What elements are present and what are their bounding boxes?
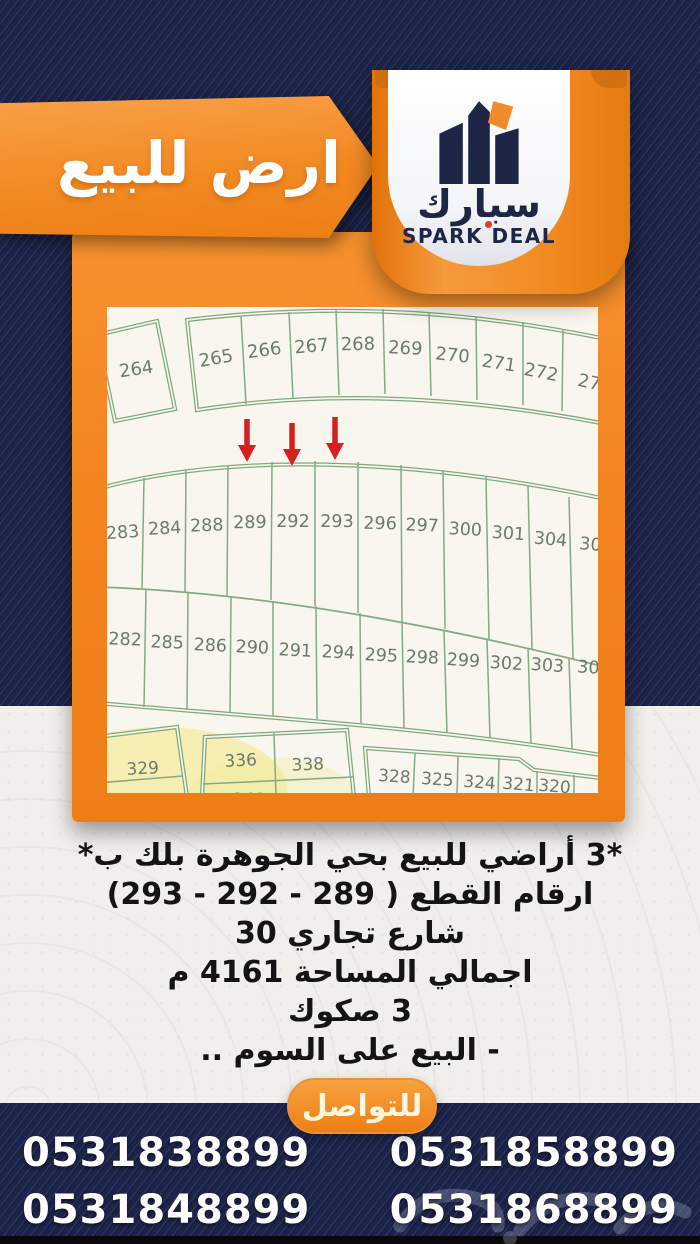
- building-icon: [424, 94, 534, 184]
- detail-line-area: اجمالي المساحة 4161 م: [0, 953, 700, 992]
- phone-number[interactable]: 0531838899: [22, 1130, 310, 1176]
- plot-number-284: 284: [148, 518, 182, 540]
- title-banner: ارض للبيع: [0, 96, 378, 238]
- plot-number-partial-339: 339: [297, 792, 329, 793]
- ad-details: *3 أراضي للبيع بحي الجوهرة بلك ب* ارقام …: [0, 836, 700, 1070]
- ad-poster: 264 3 265 266 267 268 269 270 271 272 27…: [0, 0, 700, 1244]
- plot-number-295: 295: [364, 645, 398, 667]
- detail-line-street: شارع تجاري 30: [0, 914, 700, 953]
- plot-number-303: 303: [530, 655, 565, 677]
- phone-row: 0531848899 0531868899: [22, 1181, 678, 1238]
- plot-number-328: 328: [377, 766, 411, 788]
- plot-number-269: 269: [388, 337, 423, 360]
- detail-line-deeds: 3 صكوك: [0, 992, 700, 1031]
- plot-map-svg: 264 3 265 266 267 268 269 270 271 272 27…: [107, 307, 598, 793]
- detail-line-sale-terms: - البيع على السوم ..: [0, 1031, 700, 1070]
- plot-number-338: 338: [291, 754, 324, 775]
- plot-number-299: 299: [446, 650, 481, 672]
- plot-number-324: 324: [462, 772, 496, 793]
- plot-number-321: 321: [501, 774, 535, 793]
- plot-number-partial-340: 340: [233, 790, 265, 793]
- detail-line-title: *3 أراضي للبيع بحي الجوهرة بلك ب*: [0, 836, 700, 875]
- detail-line-plot-numbers: ارقام القطع ( 289 - 292 - 293): [0, 875, 700, 914]
- plot-number-282: 282: [108, 629, 142, 650]
- plot-number-336: 336: [224, 750, 257, 772]
- contact-button[interactable]: للتواصل: [287, 1078, 437, 1134]
- map-panel: 264 3 265 266 267 268 269 270 271 272 27…: [72, 232, 625, 822]
- plot-number-partial-305: 30: [578, 534, 598, 556]
- plot-number-325: 325: [420, 769, 454, 791]
- plot-number-283: 283: [107, 522, 140, 544]
- plot-number-289: 289: [233, 513, 267, 534]
- plot-number-partial-306: 30: [577, 657, 598, 679]
- plot-number-270: 270: [434, 343, 470, 367]
- plot-number-296: 296: [363, 514, 397, 535]
- phone-number[interactable]: 0531848899: [22, 1187, 310, 1233]
- plot-number-329: 329: [126, 758, 159, 780]
- plot-number-286: 286: [193, 635, 227, 657]
- plot-number-301: 301: [491, 523, 526, 545]
- plot-number-320: 320: [537, 776, 571, 793]
- plot-number-297: 297: [405, 515, 439, 536]
- plot-number-292: 292: [276, 512, 309, 532]
- brand-name-english: SPARK DEAL: [402, 224, 556, 248]
- plot-number-298: 298: [405, 647, 439, 669]
- plot-number-304: 304: [533, 529, 568, 552]
- plot-number-266: 266: [246, 338, 283, 363]
- plot-map: 264 3 265 266 267 268 269 270 271 272 27…: [107, 307, 598, 793]
- plot-number-288: 288: [190, 515, 224, 536]
- plot-number-293: 293: [320, 512, 353, 532]
- plot-number-302: 302: [489, 653, 524, 675]
- phone-numbers: 0531838899 0531858899 0531848899 0531868…: [0, 1124, 700, 1238]
- title-banner-ribbon: ارض للبيع: [0, 96, 378, 238]
- phone-number[interactable]: 0531858899: [390, 1130, 678, 1176]
- brand-badge: سبارك SPARK DEAL: [388, 70, 570, 266]
- plot-number-285: 285: [150, 632, 184, 653]
- plot-number-267: 267: [293, 335, 329, 359]
- brand-name-arabic: سبارك: [417, 184, 541, 224]
- phone-number[interactable]: 0531868899: [390, 1187, 678, 1233]
- plot-number-294: 294: [321, 642, 355, 664]
- plot-number-291: 291: [278, 640, 312, 662]
- brand-red-dot: [485, 221, 492, 228]
- page-title: ارض للبيع: [7, 129, 371, 205]
- plot-number-268: 268: [341, 334, 376, 356]
- plot-number-290: 290: [235, 637, 269, 659]
- brand-ribbon: سبارك SPARK DEAL: [372, 70, 630, 294]
- plot-number-300: 300: [448, 519, 482, 541]
